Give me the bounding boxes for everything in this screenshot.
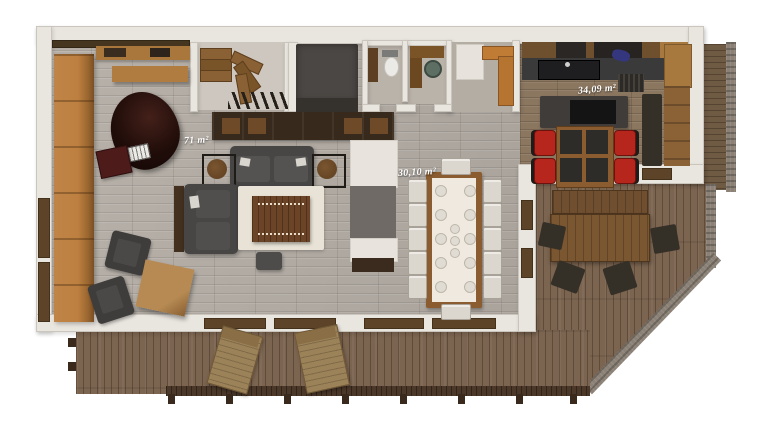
vanity (368, 48, 378, 82)
plate (464, 185, 476, 197)
centerpiece (450, 224, 460, 234)
sofa-pillow (239, 157, 250, 167)
balcony-railing (726, 42, 736, 192)
faucet (565, 62, 570, 67)
cooktop (570, 100, 616, 124)
railing-post (284, 394, 291, 404)
dining-chair (441, 158, 471, 175)
centerpiece (450, 236, 460, 246)
stove (618, 74, 644, 92)
wall (396, 104, 416, 112)
bar-table-panel (560, 158, 582, 182)
outdoor-chair (650, 224, 680, 254)
outdoor-table (550, 214, 650, 262)
sofa-pillow (189, 195, 200, 208)
bar-chair-red (614, 130, 636, 156)
toilet-tank (382, 50, 398, 57)
storage-unit-base (296, 98, 358, 112)
plate (464, 209, 476, 221)
railing-post (68, 362, 76, 371)
wall (362, 104, 380, 112)
kitchen-cabinet-box (664, 44, 692, 88)
coffee-table-decor (258, 203, 304, 205)
wall (402, 40, 408, 102)
mudroom-bench (498, 56, 514, 106)
floorplan-canvas: 71 m² 30,10 m² 34,09 m² (0, 0, 768, 432)
sideboard-slot (344, 118, 362, 134)
railing-post (570, 394, 577, 404)
sideboard-slot (248, 118, 266, 134)
dining-chair (483, 251, 502, 275)
dining-chair (408, 251, 427, 275)
plate (464, 281, 476, 293)
window-lintel (38, 262, 50, 322)
closet (456, 44, 484, 80)
ottoman (256, 252, 282, 270)
sofa-cushion (196, 222, 230, 250)
plate (435, 281, 447, 293)
tall-cabinet (664, 86, 690, 166)
room-divider (350, 140, 398, 188)
armchair-seat (96, 285, 124, 315)
armchair-seat (112, 238, 141, 267)
shelf-item (104, 48, 126, 57)
side-table-top (207, 159, 227, 179)
side-table-top (317, 159, 337, 179)
kitchen-bench (642, 94, 662, 166)
coffee-table-decor (258, 233, 304, 235)
area-label-dining: 30,10 m² (398, 167, 437, 179)
dining-chair (483, 227, 502, 251)
window-lintel (521, 248, 533, 278)
sofa-pillow (295, 157, 306, 166)
dining-chair (483, 179, 502, 203)
side-table (202, 154, 236, 188)
plate (435, 209, 447, 221)
bar-chair-red (614, 158, 636, 184)
railing-post (516, 394, 523, 404)
window-lintel (204, 318, 266, 329)
dining-chair (483, 275, 502, 299)
window-lintel (642, 168, 672, 180)
console-behind-sofa (174, 186, 184, 252)
kitchen-cabinets (556, 42, 586, 58)
dining-chair (408, 227, 427, 251)
shelf-item (150, 48, 170, 57)
railing-post (458, 394, 465, 404)
staircase (200, 70, 232, 82)
plate (464, 257, 476, 269)
dining-chair (441, 304, 471, 320)
wall-bench-segments (54, 54, 94, 322)
railing-post (226, 394, 233, 404)
railing-post (68, 338, 76, 347)
sideboard-slot (222, 118, 240, 134)
bar-table-panel (560, 130, 582, 154)
plate (435, 233, 447, 245)
room-divider-base (352, 258, 394, 272)
bar-chair-red (534, 130, 556, 156)
area-label-living: 71 m² (184, 135, 209, 146)
outdoor-bench (552, 190, 648, 214)
side-table (312, 154, 346, 188)
window-lintel (521, 200, 533, 230)
room-divider (350, 186, 396, 238)
storage-unit (296, 44, 358, 102)
stair-railing (228, 92, 288, 109)
plate (464, 233, 476, 245)
bar-chair-red (534, 158, 556, 184)
railing-post (400, 394, 407, 404)
plate (435, 257, 447, 269)
dining-chair (408, 203, 427, 227)
sideboard-slot (370, 118, 388, 134)
outdoor-chair (538, 222, 566, 250)
sofa-cushion (196, 190, 230, 218)
plate (435, 185, 447, 197)
window-lintel (38, 198, 50, 258)
bar-table-panel (586, 158, 608, 182)
dining-chair (408, 179, 427, 203)
console-table (112, 66, 188, 82)
toilet (384, 57, 399, 77)
side-table-wood (136, 259, 195, 316)
vanity (410, 46, 444, 58)
railing-post (342, 394, 349, 404)
wall (434, 104, 452, 112)
bar-table-panel (586, 130, 608, 154)
vanity-counter (410, 58, 422, 88)
washbasin (424, 60, 442, 78)
dining-chair (483, 203, 502, 227)
dining-chair (408, 275, 427, 299)
window-lintel (364, 318, 424, 329)
wall (190, 42, 198, 112)
centerpiece (450, 248, 460, 258)
railing-post (168, 394, 175, 404)
